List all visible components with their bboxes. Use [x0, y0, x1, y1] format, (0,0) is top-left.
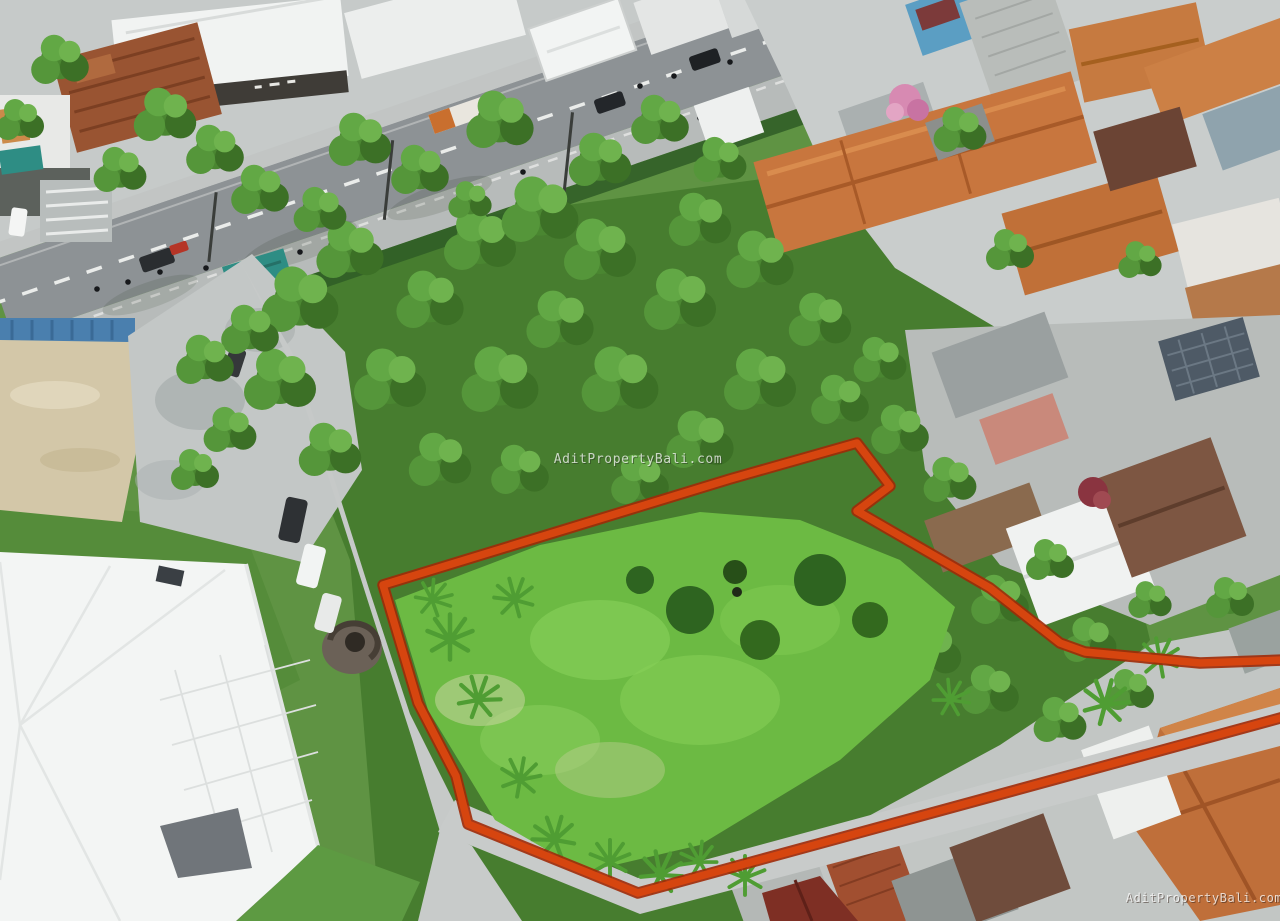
watermark-center: AditPropertyBali.com — [554, 452, 723, 467]
watermark-bottom-right: AditPropertyBali.com — [1126, 891, 1280, 905]
aerial-photo: AditPropertyBali.com AditPropertyBali.co… — [0, 0, 1280, 921]
aerial-photo-stage: AditPropertyBali.com AditPropertyBali.co… — [0, 0, 1280, 921]
